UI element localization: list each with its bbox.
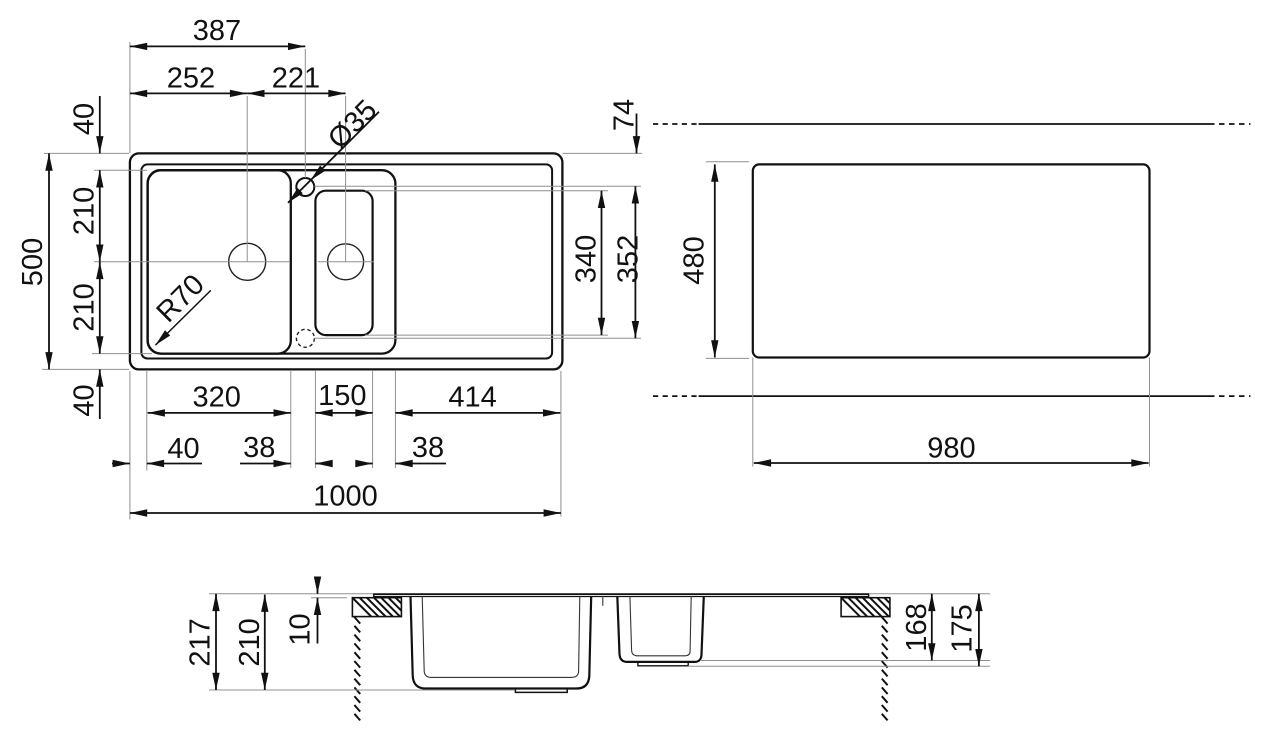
svg-text:217: 217 xyxy=(184,618,216,666)
svg-text:40: 40 xyxy=(167,433,199,465)
svg-text:221: 221 xyxy=(272,62,320,94)
svg-text:38: 38 xyxy=(412,432,444,464)
svg-text:210: 210 xyxy=(69,283,101,331)
svg-text:10: 10 xyxy=(285,613,317,645)
svg-text:74: 74 xyxy=(609,99,641,131)
svg-text:40: 40 xyxy=(69,103,101,135)
svg-text:150: 150 xyxy=(318,380,366,412)
svg-text:175: 175 xyxy=(947,604,979,652)
svg-text:210: 210 xyxy=(69,187,101,235)
svg-text:500: 500 xyxy=(17,238,49,286)
svg-text:1000: 1000 xyxy=(313,481,378,513)
svg-text:387: 387 xyxy=(193,15,241,47)
svg-text:414: 414 xyxy=(448,381,496,413)
svg-text:40: 40 xyxy=(69,384,101,416)
svg-text:340: 340 xyxy=(571,235,603,283)
svg-text:352: 352 xyxy=(613,235,645,283)
svg-text:210: 210 xyxy=(234,618,266,666)
svg-text:980: 980 xyxy=(927,433,975,465)
svg-text:38: 38 xyxy=(243,432,275,464)
svg-text:320: 320 xyxy=(193,381,241,413)
svg-text:252: 252 xyxy=(167,62,215,94)
svg-text:480: 480 xyxy=(679,236,711,284)
svg-text:168: 168 xyxy=(901,603,933,651)
